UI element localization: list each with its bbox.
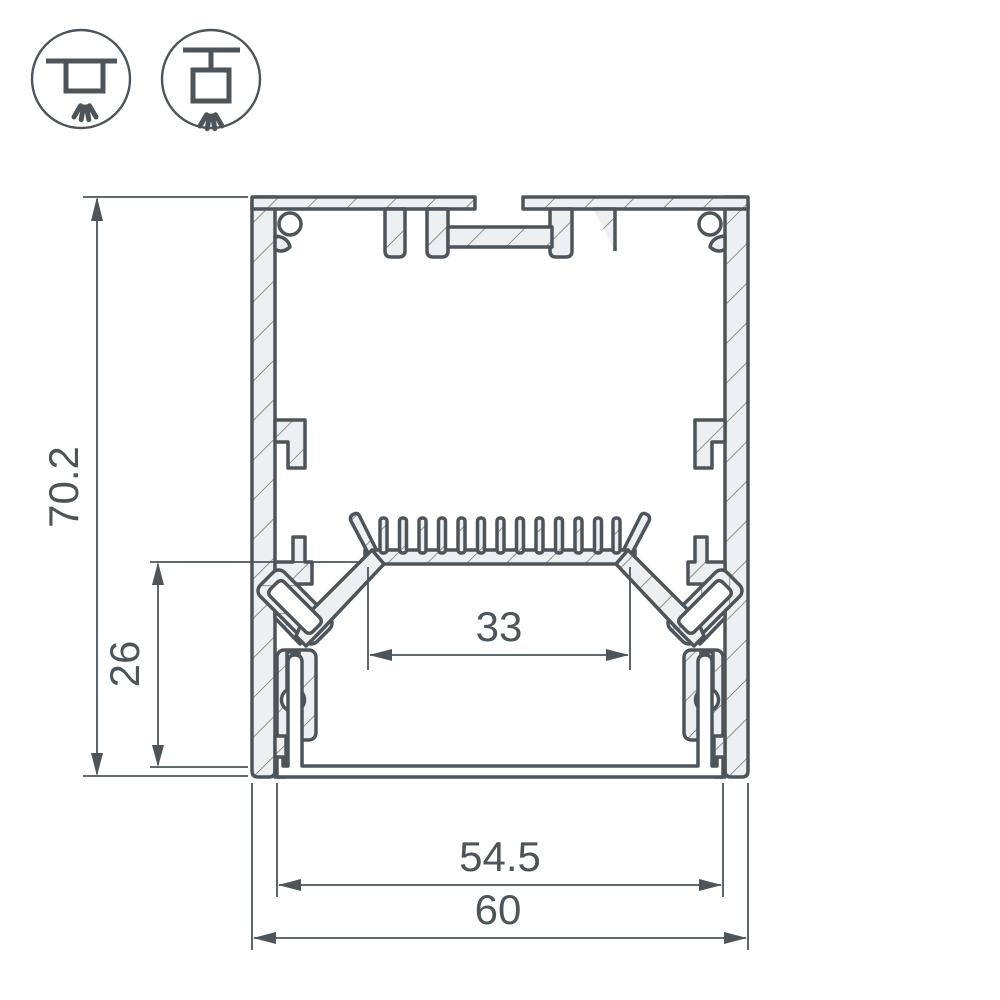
corner-nub-left: [275, 236, 290, 251]
t-slot-bar: [448, 227, 552, 247]
mounting-icons: [32, 30, 260, 129]
c-bracket-left: [275, 420, 305, 468]
corner-hook-right: [699, 213, 721, 235]
tilted-fin-right: [624, 513, 650, 553]
top-plate-left: [252, 197, 475, 209]
tilted-fin-left: [350, 513, 376, 553]
surface-mount-light-icon: [32, 30, 130, 128]
corner-nub-right: [710, 236, 725, 251]
diffuser-cover: [277, 655, 723, 777]
c-bracket-right: [695, 420, 725, 468]
corner-hook-left: [279, 213, 301, 235]
profile-body: [252, 197, 748, 777]
label-inner-height: 26: [101, 641, 148, 688]
top-rib-1: [385, 209, 405, 257]
top-rib-2: [427, 209, 448, 257]
drawing-canvas: 70.2 26 33 54.5 60: [0, 0, 1000, 1000]
label-inner-bottom-width: 54.5: [459, 833, 541, 880]
pendant-mount-light-icon: [162, 30, 260, 129]
top-plate-right: [523, 197, 748, 209]
left-wall: [252, 197, 275, 777]
label-overall-width: 60: [475, 886, 522, 933]
label-led-platform-width: 33: [476, 603, 523, 650]
heatsink-fins: [350, 513, 649, 553]
right-wall: [725, 197, 748, 777]
top-rib-4: [593, 209, 615, 251]
label-overall-height: 70.2: [40, 446, 87, 528]
technical-drawing: 70.2 26 33 54.5 60: [0, 0, 1000, 1000]
